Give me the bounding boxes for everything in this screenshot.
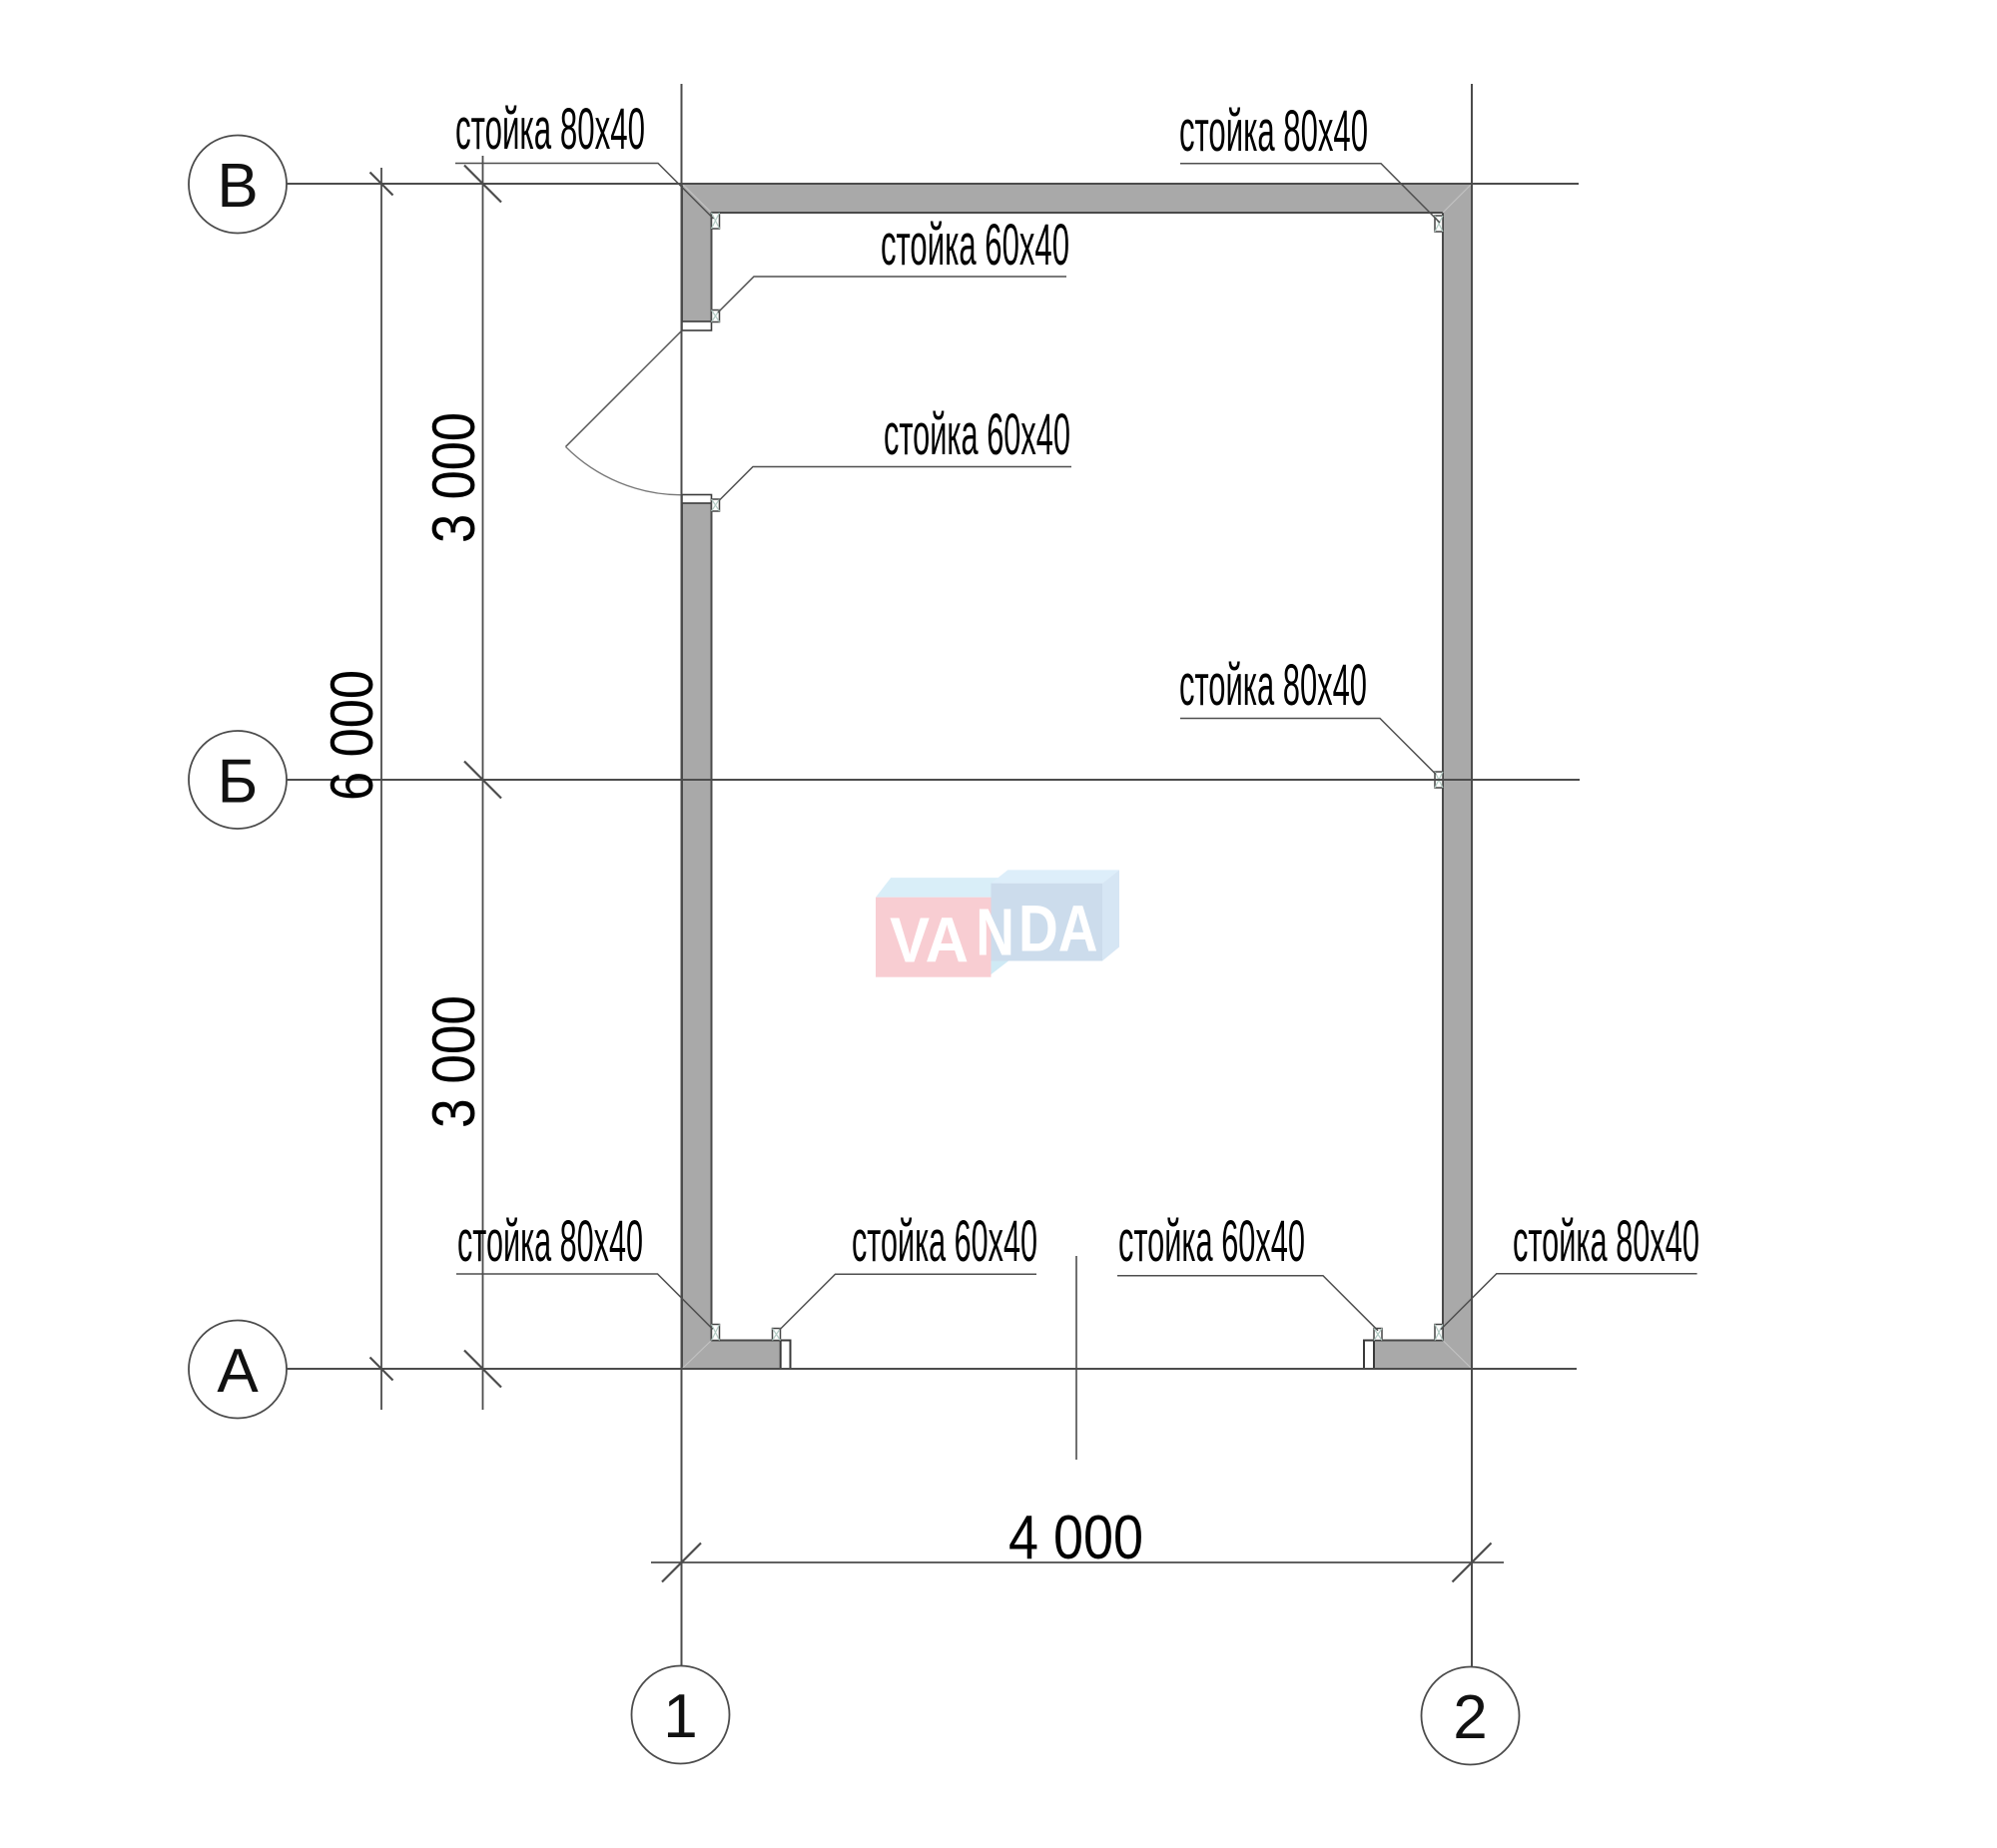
svg-text:4 000: 4 000 — [1008, 1504, 1143, 1572]
svg-text:VA: VA — [890, 905, 969, 976]
svg-text:3 000: 3 000 — [420, 995, 487, 1128]
svg-text:стойка 60х40: стойка 60х40 — [884, 402, 1070, 467]
svg-text:стойка 80х40: стойка 80х40 — [455, 97, 645, 162]
svg-text:стойка 80х40: стойка 80х40 — [1179, 653, 1367, 718]
svg-text:стойка 60х40: стойка 60х40 — [881, 213, 1069, 278]
svg-text:стойка 80х40: стойка 80х40 — [1513, 1209, 1699, 1274]
svg-text:стойка 80х40: стойка 80х40 — [457, 1209, 643, 1274]
svg-text:В: В — [217, 152, 258, 221]
svg-text:Б: Б — [218, 748, 259, 817]
svg-text:N: N — [976, 896, 1014, 970]
svg-text:стойка 60х40: стойка 60х40 — [852, 1209, 1037, 1274]
svg-text:стойка 80х40: стойка 80х40 — [1179, 99, 1368, 164]
svg-text:DA: DA — [1018, 892, 1098, 965]
svg-text:А: А — [217, 1337, 259, 1406]
svg-text:6 000: 6 000 — [319, 670, 385, 801]
svg-text:1: 1 — [663, 1682, 697, 1751]
svg-text:2: 2 — [1453, 1683, 1487, 1752]
svg-text:стойка 60х40: стойка 60х40 — [1118, 1209, 1305, 1274]
svg-text:3 000: 3 000 — [420, 412, 487, 543]
